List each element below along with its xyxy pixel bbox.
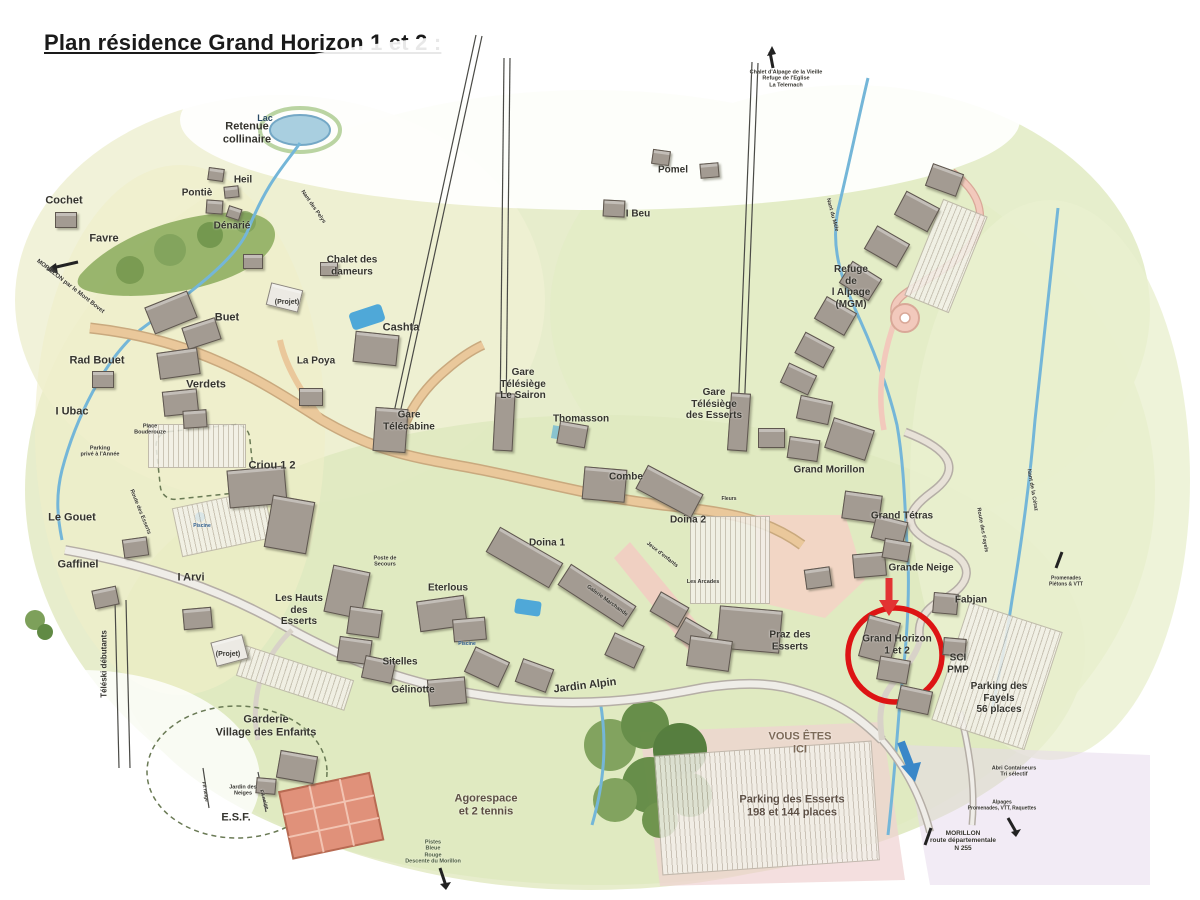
retenue-pond [270, 115, 330, 145]
map-label-piscine-2: Piscine [458, 642, 476, 648]
map-label-fleurs: Fleurs [721, 497, 736, 503]
parking-lot [690, 516, 770, 604]
building [876, 655, 911, 684]
building [299, 388, 323, 406]
map-label-doina-2: Doina 2 [670, 514, 706, 526]
map-label-gare-telesiege-le-sairon: Gare Télésiège Le Sairon [500, 367, 546, 402]
building [55, 212, 77, 228]
map-label-pomel: Pomel [658, 164, 688, 176]
map-label-rad-bouet: Rad Bouet [70, 355, 125, 368]
map-label-favre: Favre [89, 233, 118, 246]
building [182, 607, 213, 630]
map-label-garderie-village-enfants: Garderie Village des Enfants [216, 713, 317, 738]
map-label-parking-des-esserts: Parking des Esserts 198 et 144 places [739, 793, 844, 818]
map-label-la-poya: La Poya [297, 355, 335, 367]
building [804, 566, 833, 589]
map-label-praz-des-esserts: Praz des Esserts [769, 630, 810, 653]
map-label-cashta: Cashta [383, 322, 420, 335]
map-label-pontie: Pontiè [182, 187, 213, 199]
map-label-fabjan: Fabjan [955, 594, 987, 606]
map-label-morillon-n255: MORILLON route départementale N 255 [930, 830, 996, 852]
map-label-teleski-debutants: Téléski débutants [99, 630, 108, 698]
building [686, 635, 733, 672]
map-label-sitelles: Sitelles [382, 656, 417, 668]
map-label-les-arcades: Les Arcades [687, 579, 720, 585]
map-label-chalet-des-dameurs: Chalet des dameurs [327, 255, 378, 278]
map-label-combe: Combe [609, 471, 643, 483]
map-label-chalet-alpage-vieille: Chalet d'Alpage de la Vieille Refuge de … [750, 70, 823, 89]
map-label-jardin-des-neiges: Jardin des Neiges [229, 785, 257, 798]
map-label-gare-telecabine: Gare Télécabine [383, 410, 435, 433]
map-label-gare-telesiege-des-esserts: Gare Télésiège des Esserts [686, 387, 742, 422]
building [156, 347, 200, 379]
map-label-les-hauts-des-esserts: Les Hauts des Esserts [275, 593, 323, 628]
building [603, 199, 626, 217]
map-label-verdets: Verdets [186, 379, 226, 392]
building [353, 331, 400, 366]
building [182, 409, 207, 429]
resort-map: LacRetenue collinaireHeilPontièDénariéCo… [0, 0, 1200, 900]
map-label-projet-1: (Projet) [275, 299, 300, 307]
building [787, 436, 821, 462]
map-label-piscine-1: Piscine [193, 524, 211, 530]
map-label-le-gouet: Le Gouet [48, 512, 96, 525]
map-label-refuge-alpage-mgm: Refuge de l Alpage (MGM) [832, 264, 871, 310]
building [207, 167, 225, 182]
building [452, 617, 487, 643]
map-label-buet: Buet [215, 312, 239, 325]
map-label-place-bouderouze: Place Bouderouze [134, 424, 166, 437]
map-label-pistes-descente: Pistes Bleue Rouge Descente du Morillon [405, 839, 461, 864]
map-label-sci-pmp: SCI PMP [947, 653, 969, 676]
map-label-i-beu: I Beu [626, 208, 650, 220]
map-label-cochet: Cochet [45, 195, 82, 208]
building [556, 421, 589, 449]
map-label-heil: Heil [234, 174, 252, 186]
building [206, 199, 224, 214]
building [346, 606, 383, 638]
map-label-i-arvi: I Arvi [177, 572, 204, 585]
building [223, 185, 239, 199]
building [758, 428, 785, 448]
map-label-grand-morillon: Grand Morillon [793, 464, 864, 476]
map-label-retenue-collinaire: Retenue collinaire [223, 120, 271, 145]
building [243, 254, 263, 269]
map-label-poste-de-secours: Poste de Secours [374, 556, 397, 569]
map-label-projet-2: (Projet) [216, 651, 241, 659]
map-label-denarie: Dénarié [214, 220, 251, 232]
map-label-criou-1-2: Criou 1 2 [248, 460, 295, 473]
map-label-eterlous: Eterlous [428, 582, 468, 594]
map-label-gelinotte: Gélinotte [391, 684, 434, 696]
building [264, 495, 316, 555]
map-label-abri-containeurs: Abri Containeurs Tri sélectif [992, 766, 1037, 779]
map-label-alpages-promenades: Alpages Promenades, VTT, Raquettes [968, 800, 1037, 812]
building [699, 162, 719, 179]
building [492, 393, 515, 452]
building [122, 536, 149, 558]
map-label-gaffinel: Gaffinel [58, 559, 99, 572]
map-label-esf: E.S.F. [221, 812, 250, 825]
map-label-thomasson: Thomasson [553, 413, 609, 425]
map-label-parking-des-fayels: Parking des Fayels 56 places [971, 681, 1028, 716]
building [92, 371, 114, 388]
map-label-doina-1: Doina 1 [529, 537, 565, 549]
map-label-vous-etes-ici: VOUS ÊTES ICI [769, 730, 832, 755]
plan-page: Plan résidence Grand Horizon 1 et 2 : [0, 0, 1200, 900]
map-label-grande-neige: Grande Neige [888, 562, 953, 574]
map-label-promenades-pietons-vtt: Promenades Piétons & VTT [1049, 576, 1083, 588]
map-label-grand-horizon-1-et-2: Grand Horizon 1 et 2 [862, 634, 931, 657]
map-label-agorespace: Agorespace et 2 tennis [455, 792, 518, 817]
map-label-i-ubac: I Ubac [55, 406, 88, 419]
map-label-parking-prive: Parking privé à l'Année [81, 446, 120, 459]
map-label-grand-tetras: Grand Tétras [871, 510, 933, 522]
